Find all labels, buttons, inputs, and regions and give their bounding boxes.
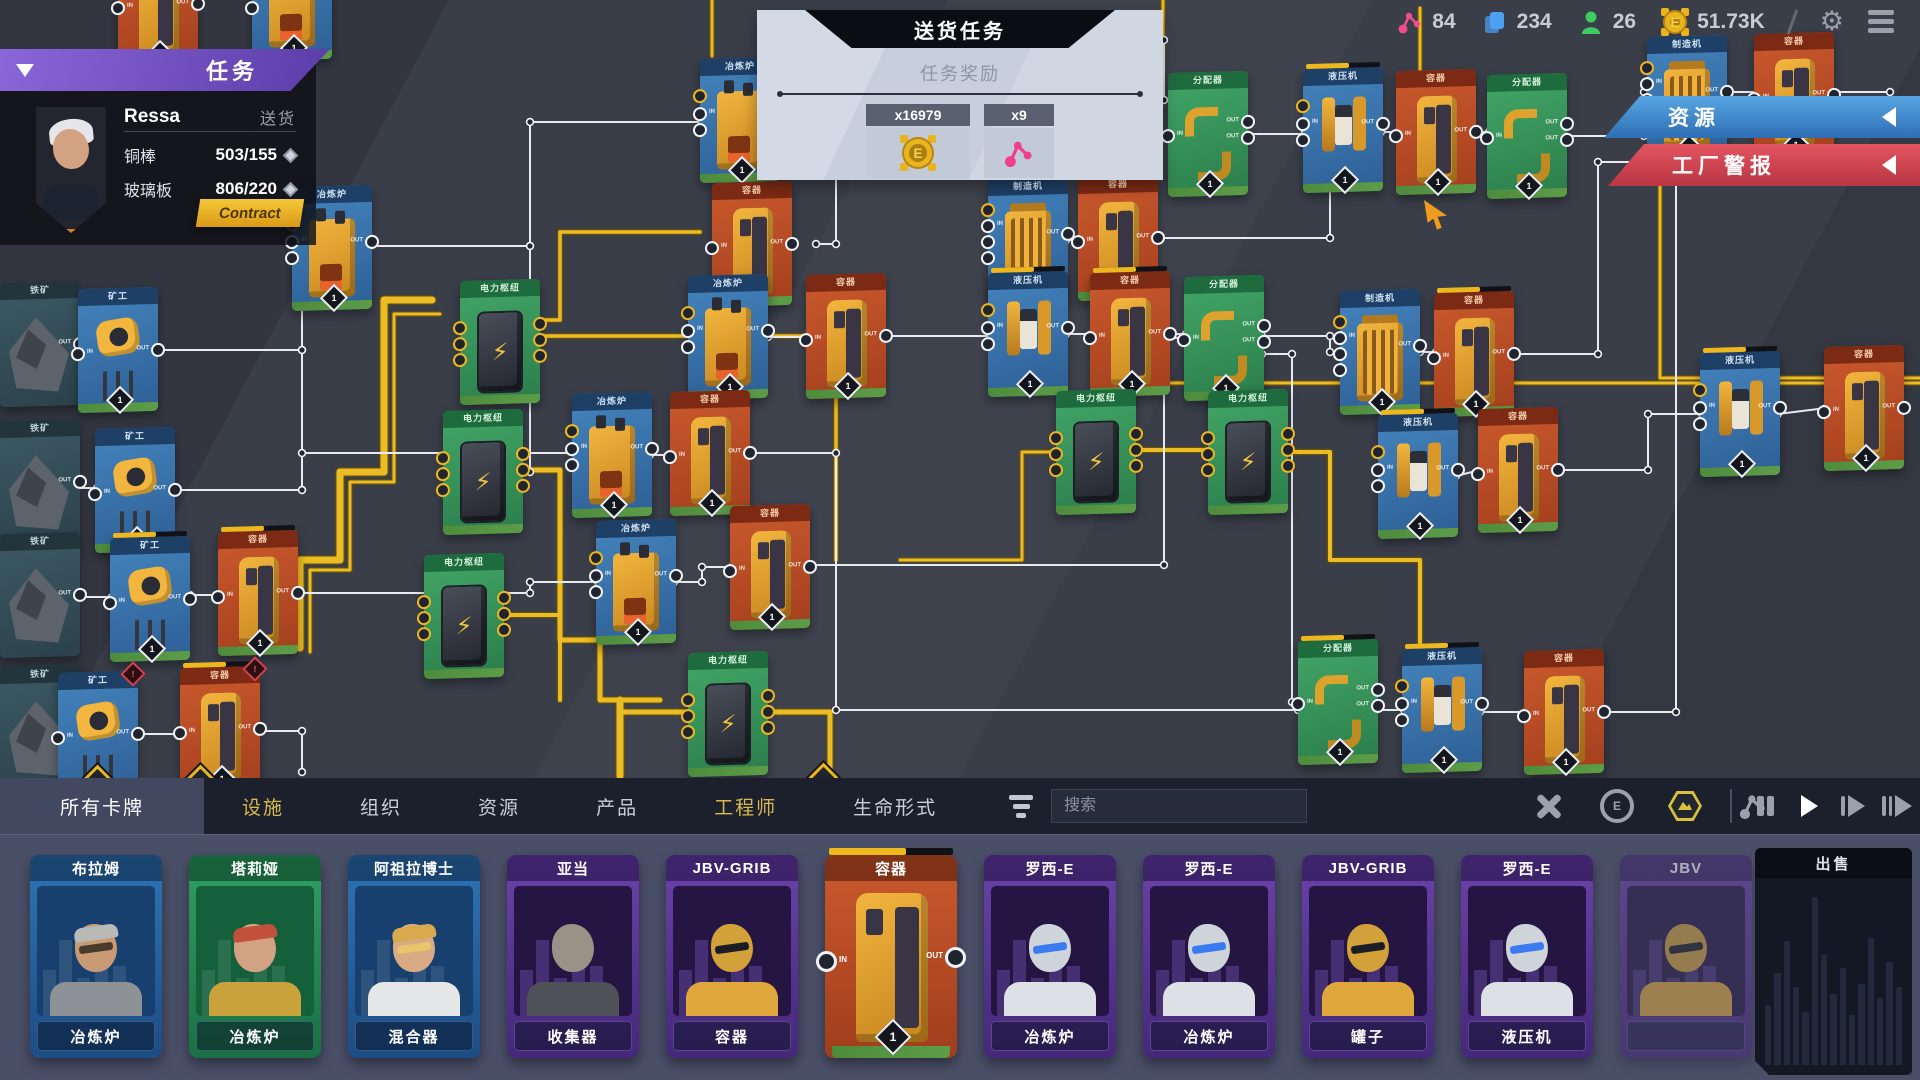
machine-card-矿工[interactable]: 矿工 INOUT1 — [78, 287, 158, 413]
diamond-icon — [283, 181, 299, 197]
machine-card-容器[interactable]: 容器 INOUT1 — [1478, 407, 1558, 533]
machine-card-液压机[interactable]: 液压机 INOUT1 — [1378, 413, 1458, 539]
quest-rewards: x16979 E x9 — [757, 104, 1163, 178]
out-port[interactable] — [945, 947, 966, 968]
card-title: JBV — [1620, 855, 1752, 881]
out-port[interactable] — [291, 586, 305, 600]
machine-card-分配器[interactable]: 分配器 INOUTOUT1 — [1487, 73, 1567, 199]
machine-card-液压机[interactable]: 液压机 INOUT1 — [1402, 647, 1482, 773]
card-role-label: 冶炼炉 — [991, 1021, 1109, 1051]
machine-card-容器[interactable]: 容器 INOUT1 — [1090, 271, 1170, 397]
portrait-art — [991, 886, 1109, 1016]
machine-card-电力枢纽[interactable]: 电力枢纽 — [460, 279, 540, 405]
machine-card-容器[interactable]: 容器 INOUT1 — [806, 273, 886, 399]
shelf-card-JBV-GRIB[interactable]: JBV-GRIB 罐子 — [1302, 855, 1434, 1058]
card-title: 容器 — [825, 855, 957, 881]
out-port[interactable] — [1257, 335, 1271, 349]
machine-card-分配器[interactable]: 分配器 INOUTOUT1 — [1168, 71, 1248, 197]
resource-value: 84 — [1432, 10, 1455, 34]
agent-portrait — [36, 107, 106, 233]
task-panel-header[interactable]: 任务 — [0, 49, 330, 91]
tab-工程师[interactable]: 工程师 — [676, 778, 815, 834]
reward-quantity: x16979 — [866, 104, 970, 126]
out-port[interactable] — [183, 592, 197, 606]
molecule-icon — [1397, 9, 1423, 35]
portrait-art — [1309, 886, 1427, 1016]
portrait-art — [673, 886, 791, 1016]
menu-icon[interactable] — [1868, 10, 1894, 33]
card-role-label: 罐子 — [1309, 1021, 1427, 1051]
power-port[interactable] — [1129, 443, 1143, 457]
machine-card-铁矿[interactable]: 铁矿 OUT — [0, 532, 80, 658]
out-port[interactable] — [785, 237, 799, 251]
topbar-stats: 8423426E51.73K — [1397, 9, 1764, 35]
shelf-card-罗西-E[interactable]: 罗西-E 冶炼炉 — [1143, 855, 1275, 1058]
shelf-card-布拉姆[interactable]: 布拉姆 冶炼炉 — [30, 855, 162, 1058]
machine-card-液压机[interactable]: 液压机 INOUT1 — [1700, 351, 1780, 477]
quest-rewards-label: 任务奖励 — [757, 60, 1163, 86]
card-title: 亚当 — [507, 855, 639, 881]
machine-card-矿工[interactable]: 矿工 INOUT1 — [110, 536, 190, 662]
out-port[interactable] — [191, 0, 205, 11]
shelf-card-阿祖拉博士[interactable]: 阿祖拉博士 混合器 — [348, 855, 480, 1058]
card-title: 罗西-E — [1461, 855, 1593, 881]
out-port[interactable] — [168, 483, 182, 497]
divider — [1730, 789, 1732, 823]
sell-panel-bars — [1765, 888, 1902, 1065]
tab-所有卡牌[interactable]: 所有卡牌 — [0, 778, 204, 834]
divider — [1786, 9, 1798, 34]
hexagon-icon[interactable] — [1668, 789, 1702, 823]
machine-card-铁矿[interactable]: 铁矿 OUT — [0, 419, 80, 545]
machine-card-分配器[interactable]: 分配器 INOUTOUT1 — [1184, 275, 1264, 401]
resource-counter: 26 — [1578, 9, 1636, 35]
machine-card-铁矿[interactable]: 铁矿 OUT — [0, 281, 80, 407]
card-role-label: 收集器 — [514, 1021, 632, 1051]
card-role-label — [1627, 1021, 1745, 1051]
bottom-toolbar: 所有卡牌设施组织资源产品工程师生命形式 E — [0, 778, 1920, 834]
power-port[interactable] — [497, 623, 511, 637]
shelf-card-JBV[interactable]: JBV — [1620, 855, 1752, 1058]
automation-coin-icon[interactable]: E — [1600, 789, 1634, 823]
out-port[interactable] — [1560, 117, 1574, 131]
shelf-card-罗西-E[interactable]: 罗西-E 液压机 — [1461, 855, 1593, 1058]
resource-counter: E51.73K — [1662, 9, 1765, 35]
power-port[interactable] — [497, 607, 511, 621]
tab-生命形式[interactable]: 生命形式 — [815, 778, 975, 834]
requirement-item: 玻璃板 — [124, 177, 172, 201]
machine-card-容器[interactable]: 容器 INOUT1 — [1524, 649, 1604, 775]
portrait-art — [1468, 886, 1586, 1016]
card-title: 罗西-E — [1143, 855, 1275, 881]
power-port[interactable] — [1129, 427, 1143, 441]
task-side-panel: 任务 Ressa 送货 铜棒 503/155 玻璃板 806/220 Contr… — [0, 51, 316, 245]
tab-资源[interactable]: 资源 — [440, 778, 558, 834]
molecule-icon — [1003, 137, 1035, 169]
power-port[interactable] — [761, 721, 775, 735]
machine-card-容器[interactable]: 容器 INOUT1 — [730, 504, 810, 630]
out-port[interactable] — [1241, 115, 1255, 129]
out-port[interactable] — [73, 588, 87, 602]
task-type: 送货 — [260, 105, 296, 129]
resources-banner[interactable]: 资源 — [1604, 96, 1920, 138]
shelf-card-亚当[interactable]: 亚当 收集器 — [507, 855, 639, 1058]
top-resource-bar: 8423426E51.73K ⚙ — [1397, 8, 1894, 35]
collapse-arrow-icon[interactable] — [16, 64, 34, 77]
out-port[interactable] — [743, 446, 757, 460]
power-port[interactable] — [533, 349, 547, 363]
shelf-card-JBV-GRIB[interactable]: JBV-GRIB 容器 — [666, 855, 798, 1058]
card-title: 罗西-E — [984, 855, 1116, 881]
out-port[interactable] — [803, 560, 817, 574]
card-role-label: 冶炼炉 — [1150, 1021, 1268, 1051]
contract-button[interactable]: Contract — [196, 199, 304, 227]
requirement-progress: 806/220 — [216, 179, 296, 199]
sell-panel[interactable]: 出售 — [1755, 848, 1912, 1075]
machine-card-电力枢纽[interactable]: 电力枢纽 — [1056, 389, 1136, 515]
agent-name: Ressa — [124, 106, 180, 128]
out-port[interactable] — [1061, 321, 1075, 335]
reward-item: x16979 E — [866, 104, 970, 178]
out-port[interactable] — [879, 329, 893, 343]
machine-card-液压机[interactable]: 液压机 INOUT1 — [988, 271, 1068, 397]
out-port[interactable] — [1241, 131, 1255, 145]
power-port[interactable] — [516, 463, 530, 477]
machine-card-容器[interactable]: 容器 INOUT1 — [1396, 69, 1476, 195]
out-port[interactable] — [1371, 683, 1385, 697]
card-progress-bar — [829, 848, 953, 855]
machine-card-容器[interactable]: 容器 INOUT1 — [670, 390, 750, 516]
resource-counter: 84 — [1397, 9, 1455, 35]
power-port[interactable] — [516, 447, 530, 461]
machine-card-电力枢纽[interactable]: 电力枢纽 — [1208, 389, 1288, 515]
power-port[interactable] — [1281, 459, 1295, 473]
out-port[interactable] — [365, 235, 379, 249]
out-port[interactable] — [645, 442, 659, 456]
card-title: JBV-GRIB — [666, 855, 798, 881]
task-requirement-row: 玻璃板 806/220 — [124, 177, 296, 201]
out-port[interactable] — [73, 475, 87, 489]
power-port[interactable] — [1281, 443, 1295, 457]
portrait-art — [1627, 886, 1745, 1016]
mouse-cursor-icon — [1424, 200, 1450, 230]
shelf-card-塔莉娅[interactable]: 塔莉娅 冶炼炉 — [189, 855, 321, 1058]
portrait-art — [355, 886, 473, 1016]
machine-card-分配器[interactable]: 分配器 INOUTOUT1 — [1298, 639, 1378, 765]
card-title: 塔莉娅 — [189, 855, 321, 881]
shelf-card-容器[interactable]: 容器 IN OUT 1 — [825, 855, 957, 1058]
portrait-art — [196, 886, 314, 1016]
out-port[interactable] — [1413, 339, 1427, 353]
card-role-label: 冶炼炉 — [196, 1021, 314, 1051]
quest-title-banner: 送货任务 — [805, 10, 1115, 48]
out-port[interactable] — [253, 722, 267, 736]
sell-panel-title: 出售 — [1755, 848, 1912, 878]
card-role-label: 液压机 — [1468, 1021, 1586, 1051]
card-tabs: 所有卡牌设施组织资源产品工程师生命形式 — [0, 778, 975, 834]
machine-card-容器[interactable]: 容器 INOUT1 — [1824, 345, 1904, 471]
machine-card-电力枢纽[interactable]: 电力枢纽 — [688, 651, 768, 777]
machine-card-电力枢纽[interactable]: 电力枢纽 — [424, 553, 504, 679]
out-port[interactable] — [131, 727, 145, 741]
out-port[interactable] — [1475, 697, 1489, 711]
quest-title: 送货任务 — [914, 15, 1006, 44]
cards-icon — [1482, 9, 1508, 35]
machine-card-冶炼炉[interactable]: 冶炼炉 INOUT1 — [688, 274, 768, 400]
card-role-label: 混合器 — [355, 1021, 473, 1051]
out-port[interactable] — [1163, 327, 1177, 341]
search-input[interactable] — [1051, 789, 1307, 823]
filter-icon[interactable] — [1009, 795, 1033, 818]
power-port[interactable] — [497, 591, 511, 605]
play-button[interactable] — [1794, 791, 1824, 821]
power-port[interactable] — [1281, 427, 1295, 441]
out-port[interactable] — [669, 569, 683, 583]
out-port[interactable] — [1451, 463, 1465, 477]
fast-forward-button[interactable] — [1838, 791, 1868, 821]
delivery-quest-panel: 送货任务 任务奖励 x16979 E x9 — [757, 10, 1163, 180]
machine-card-电力枢纽[interactable]: 电力枢纽 — [443, 409, 523, 535]
card-title: JBV-GRIB — [1302, 855, 1434, 881]
out-port[interactable] — [151, 343, 165, 357]
power-port[interactable] — [1129, 459, 1143, 473]
out-port[interactable] — [1597, 705, 1611, 719]
machine-card-容器[interactable]: 容器 INOUT1 — [1434, 291, 1514, 417]
power-port[interactable] — [761, 705, 775, 719]
machine-card-冶炼炉[interactable]: 冶炼炉 INOUT1 — [596, 519, 676, 645]
machine-card-液压机[interactable]: 液压机 INOUT1 — [1303, 67, 1383, 193]
portrait-art — [1150, 886, 1268, 1016]
divider — [779, 93, 1141, 95]
machine-card-容器[interactable]: 容器 INOUT1 — [1754, 32, 1834, 158]
task-panel-title: 任务 — [34, 54, 330, 86]
card-role-label: 冶炼炉 — [37, 1021, 155, 1051]
card-title: 阿祖拉博士 — [348, 855, 480, 881]
shelf-card-罗西-E[interactable]: 罗西-E 冶炼炉 — [984, 855, 1116, 1058]
resource-value: 26 — [1613, 10, 1636, 34]
reward-item: x9 — [984, 104, 1054, 178]
diamond-icon — [283, 147, 299, 163]
requirement-progress: 503/155 — [216, 145, 296, 165]
out-port[interactable] — [1551, 463, 1565, 477]
out-port[interactable] — [1376, 117, 1390, 131]
in-port[interactable] — [816, 951, 837, 972]
coin-icon: E — [1662, 9, 1688, 35]
machine-card-冶炼炉[interactable]: 冶炼炉 INOUT1 — [572, 392, 652, 518]
out-port[interactable] — [1560, 133, 1574, 147]
power-port[interactable] — [533, 333, 547, 347]
card-title: 布拉姆 — [30, 855, 162, 881]
repair-tools-icon[interactable] — [1532, 789, 1566, 823]
tab-产品[interactable]: 产品 — [558, 778, 676, 834]
portrait-art — [514, 886, 632, 1016]
requirement-item: 铜棒 — [124, 143, 156, 167]
out-port[interactable] — [1257, 319, 1271, 333]
machine-card-容器[interactable]: 容器 INOUT1 — [218, 530, 298, 656]
out-port[interactable] — [1773, 401, 1787, 415]
left-arrow-icon — [1882, 155, 1896, 175]
fastest-button[interactable] — [1882, 791, 1912, 821]
tab-组织[interactable]: 组织 — [322, 778, 440, 834]
left-arrow-icon — [1882, 107, 1896, 127]
task-requirement-row: 铜棒 503/155 — [124, 143, 296, 167]
settings-gear-icon[interactable]: ⚙ — [1820, 8, 1844, 35]
game-screen: 容器 INOUT1冶炼炉 INOUT1铁矿 OUT矿工 INOUT1铁矿 OUT… — [0, 0, 1920, 1080]
tab-设施[interactable]: 设施 — [204, 778, 322, 834]
resource-value: 234 — [1517, 10, 1552, 34]
out-port[interactable] — [1507, 347, 1521, 361]
resource-value: 51.73K — [1697, 10, 1765, 34]
pause-button[interactable] — [1750, 791, 1780, 821]
power-port[interactable] — [533, 317, 547, 331]
coin-icon: E — [901, 136, 935, 170]
machine-card-制造机[interactable]: 制造机 INOUT1 — [1340, 289, 1420, 415]
engineer-icon — [1578, 9, 1604, 35]
power-port[interactable] — [516, 479, 530, 493]
card-role-label: 容器 — [673, 1021, 791, 1051]
out-port[interactable] — [1371, 699, 1385, 713]
reward-quantity: x9 — [984, 104, 1054, 126]
out-port[interactable] — [1151, 231, 1165, 245]
sim-speed-controls — [1730, 789, 1912, 823]
out-port[interactable] — [761, 324, 775, 338]
card-shelf: 布拉姆 冶炼炉 塔莉娅 冶炼炉 阿祖拉博士 混合器 — [0, 833, 1920, 1080]
resource-counter: 234 — [1482, 9, 1552, 35]
portrait-art — [37, 886, 155, 1016]
power-port[interactable] — [761, 689, 775, 703]
divider — [124, 131, 296, 132]
out-port[interactable] — [1897, 401, 1911, 415]
factory-alert-banner[interactable]: 工厂警报 — [1608, 144, 1920, 186]
